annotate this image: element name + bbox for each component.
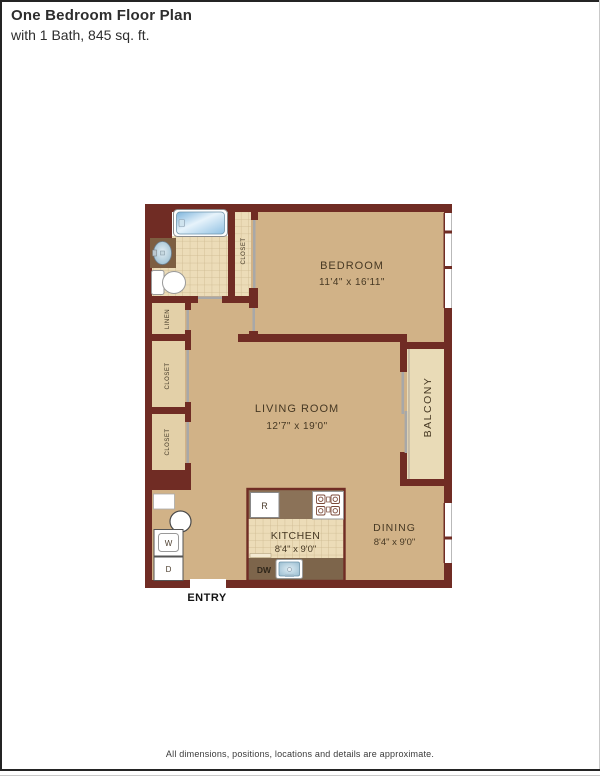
living-room-dims: 12'7" x 19'0" bbox=[266, 421, 327, 432]
wall-passage-top bbox=[222, 296, 252, 303]
bathroom-door bbox=[198, 297, 222, 300]
counter-ledge bbox=[250, 554, 271, 558]
dining-label: DINING bbox=[373, 522, 416, 534]
lower-closet-door bbox=[187, 422, 190, 463]
wall-balcony-top bbox=[400, 342, 452, 349]
wall-closets-right-a bbox=[185, 296, 191, 310]
living-room-label: LIVING ROOM bbox=[255, 403, 339, 415]
entry-door-opening bbox=[190, 579, 226, 589]
wall-closet-stub-bottom bbox=[249, 288, 258, 308]
balcony-track-line bbox=[408, 349, 410, 479]
dining-dims: 8'4" x 9'0" bbox=[374, 537, 416, 548]
wall-bath-right bbox=[228, 204, 235, 303]
kitchen-label: KITCHEN bbox=[271, 530, 321, 542]
bedroom-closet-door bbox=[253, 220, 256, 288]
dining-window-mullion bbox=[444, 537, 453, 540]
dining-window-outer-line bbox=[451, 503, 452, 563]
wall-tub-side-block bbox=[148, 207, 172, 238]
wall-living-right-upper bbox=[400, 334, 407, 372]
wall-bath-bottom bbox=[152, 296, 198, 303]
sink-drain-icon bbox=[161, 251, 165, 255]
wall-linen-bottom bbox=[145, 334, 191, 341]
sink-faucet-icon bbox=[153, 250, 157, 256]
dryer-label: D bbox=[166, 565, 172, 574]
bedroom-closet-label: CLOSET bbox=[241, 237, 247, 264]
wall-bedroom-bottom bbox=[238, 334, 407, 342]
bedroom-door bbox=[253, 308, 256, 331]
washer-label: W bbox=[165, 539, 173, 548]
kitchen-sink-drain-icon bbox=[288, 568, 292, 572]
table-icon bbox=[170, 511, 191, 532]
bedroom-window-outer-line bbox=[451, 213, 452, 308]
wall-balcony-bottom bbox=[400, 479, 452, 486]
balcony-label: BALCONY bbox=[422, 377, 434, 438]
wall-mid-closet-bottom bbox=[145, 407, 191, 414]
mid-closet-door bbox=[187, 350, 190, 402]
bedroom-window-inner-line bbox=[444, 213, 445, 308]
dining-window-inner-line bbox=[444, 503, 445, 563]
balcony-slider-panel-1 bbox=[402, 372, 405, 414]
wall-bottom-left bbox=[145, 580, 190, 588]
dishwasher-label: DW bbox=[257, 565, 272, 575]
balcony-slider-panel-2 bbox=[405, 411, 408, 453]
linen-closet-label: LINEN bbox=[165, 309, 171, 329]
entry-shelf bbox=[154, 494, 175, 509]
mid-closet-label: CLOSET bbox=[165, 362, 171, 389]
wall-block-below-closets bbox=[145, 470, 191, 490]
kitchen-dims: 8'4" x 9'0" bbox=[275, 544, 317, 555]
linen-closet-door bbox=[187, 310, 190, 330]
refrigerator-label: R bbox=[261, 501, 268, 511]
bedroom-label: BEDROOM bbox=[320, 260, 384, 272]
bathtub-faucet-icon bbox=[179, 220, 185, 227]
bedroom-window-mullion-2 bbox=[444, 266, 453, 269]
lower-closet-label: CLOSET bbox=[165, 428, 171, 455]
floor-plan-page: One Bedroom Floor Plan with 1 Bath, 845 … bbox=[0, 0, 600, 776]
disclaimer-text: All dimensions, positions, locations and… bbox=[0, 749, 600, 759]
floor-plan-drawing: W D R DW bbox=[0, 0, 600, 776]
bedroom-window-mullion-1 bbox=[444, 231, 453, 234]
bedroom-dims: 11'4" x 16'11" bbox=[319, 277, 385, 288]
toilet-bowl-icon bbox=[163, 272, 186, 294]
kitchen-sink-base bbox=[285, 575, 294, 578]
entry-label: ENTRY bbox=[187, 592, 227, 604]
wall-closet-stub-top bbox=[251, 204, 258, 220]
